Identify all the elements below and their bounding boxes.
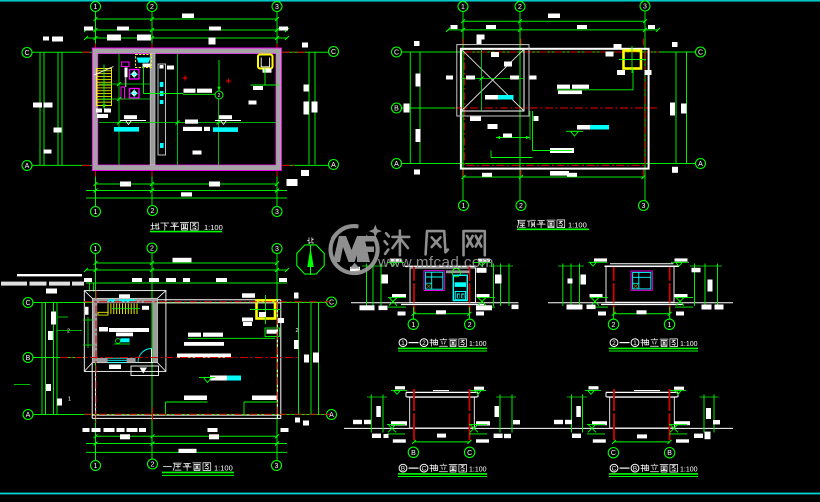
svg-text:1:100: 1:100: [680, 467, 698, 474]
svg-text:1: 1: [94, 209, 98, 216]
svg-text:1: 1: [94, 4, 98, 11]
svg-text:3: 3: [643, 4, 647, 11]
svg-text:B: B: [411, 450, 416, 457]
svg-text:1: 1: [462, 203, 466, 210]
svg-text:2: 2: [218, 93, 221, 99]
svg-text:A: A: [329, 412, 334, 419]
svg-text:C: C: [612, 465, 617, 472]
svg-text:1: 1: [94, 463, 98, 470]
svg-text:C: C: [698, 50, 703, 57]
svg-text:3: 3: [275, 4, 279, 11]
svg-text:A: A: [25, 163, 30, 170]
svg-text:3: 3: [642, 203, 646, 210]
svg-text:A: A: [698, 161, 703, 168]
svg-text:2: 2: [151, 208, 155, 215]
svg-text:www.mfcad.com: www.mfcad.com: [377, 254, 494, 271]
svg-text:2: 2: [518, 4, 522, 11]
svg-text:1:100: 1:100: [469, 341, 487, 348]
svg-text:2: 2: [468, 322, 472, 329]
svg-text:2: 2: [519, 203, 523, 210]
svg-text:A: A: [26, 412, 31, 419]
svg-text:1: 1: [401, 340, 405, 347]
svg-text:3: 3: [275, 246, 279, 253]
svg-text:A: A: [331, 162, 336, 169]
svg-text:1: 1: [68, 397, 71, 403]
svg-text:1:100: 1:100: [680, 341, 698, 348]
svg-text:C: C: [394, 50, 399, 57]
svg-text:1: 1: [411, 322, 415, 329]
svg-text:1: 1: [633, 340, 637, 347]
svg-text:C: C: [611, 450, 616, 457]
svg-text:C: C: [422, 465, 427, 472]
svg-text:2: 2: [422, 340, 426, 347]
svg-text:1:100: 1:100: [568, 221, 587, 230]
svg-text:B: B: [26, 355, 31, 362]
svg-text:1: 1: [94, 246, 98, 253]
svg-text:2: 2: [67, 329, 70, 335]
svg-text:3: 3: [275, 463, 279, 470]
svg-text:B: B: [401, 465, 405, 472]
svg-text:C: C: [331, 49, 336, 56]
svg-text:2: 2: [151, 462, 155, 469]
svg-text:3: 3: [275, 209, 279, 216]
svg-text:1:100: 1:100: [204, 223, 223, 232]
svg-text:2: 2: [612, 322, 616, 329]
svg-text:B: B: [394, 106, 399, 113]
svg-text:2: 2: [296, 328, 299, 334]
svg-text:1: 1: [461, 4, 465, 11]
svg-text:B: B: [633, 465, 637, 472]
svg-text:1: 1: [668, 322, 672, 329]
svg-text:C: C: [467, 450, 472, 457]
svg-text:1:100: 1:100: [469, 467, 487, 474]
svg-text:A: A: [394, 161, 399, 168]
svg-text:2: 2: [150, 4, 154, 11]
svg-text:C: C: [24, 50, 29, 57]
svg-text:B: B: [667, 450, 672, 457]
svg-text:C: C: [329, 300, 334, 307]
svg-text:1:100: 1:100: [214, 464, 233, 473]
svg-text:2: 2: [150, 246, 154, 253]
svg-text:2: 2: [612, 340, 616, 347]
svg-text:C: C: [25, 300, 30, 307]
